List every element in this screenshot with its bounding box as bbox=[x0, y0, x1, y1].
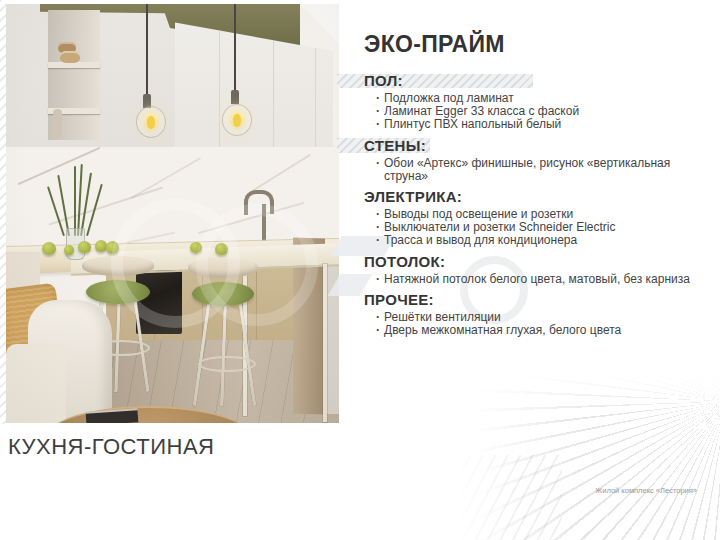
marble-vein bbox=[77, 232, 175, 255]
stool-cushion-green bbox=[192, 282, 254, 306]
bottle bbox=[53, 109, 62, 137]
plant-stem bbox=[47, 186, 65, 236]
pendant-socket bbox=[231, 90, 239, 104]
stool-footrest bbox=[198, 356, 256, 372]
plant-stem bbox=[80, 173, 92, 237]
open-shelf-niche bbox=[48, 10, 100, 140]
spec-item: Дверь межкомнатная глухая, белого цвета bbox=[376, 324, 716, 337]
countertop bbox=[6, 238, 339, 274]
section-heading-walls: СТЕНЫ: bbox=[364, 138, 716, 154]
page-title: ЭКО-ПРАЙМ bbox=[364, 31, 505, 58]
pear bbox=[42, 242, 56, 255]
island-panel-line bbox=[154, 262, 155, 350]
glass-vase bbox=[66, 228, 85, 260]
spec-item: Обои «Артекс» финишные, рисунок «вертика… bbox=[376, 157, 716, 183]
stool-leg bbox=[134, 300, 150, 392]
spec-item: Натяжной потолок белого цвета, матовый, … bbox=[376, 273, 716, 286]
bulb-filament bbox=[233, 114, 241, 127]
upper-cabinet-right bbox=[175, 12, 333, 162]
pendant-cord bbox=[234, 4, 236, 92]
pear bbox=[106, 241, 119, 254]
watermark-ring bbox=[196, 204, 318, 326]
shelf-board bbox=[48, 62, 100, 68]
pear bbox=[78, 241, 91, 253]
upper-cabinet-left bbox=[6, 4, 175, 152]
stool-leg bbox=[193, 304, 210, 405]
sofa-back bbox=[6, 252, 40, 423]
cabinet-seam bbox=[273, 12, 274, 160]
section-heading-ceiling: ПОТОЛОК: bbox=[364, 254, 716, 270]
olive-wall-band bbox=[40, 4, 300, 50]
magazine bbox=[86, 410, 139, 423]
island-panel-line bbox=[202, 262, 203, 350]
jar bbox=[60, 51, 80, 63]
marble-vein bbox=[251, 154, 311, 193]
faucet-spout bbox=[244, 206, 248, 215]
spec-item: Трасса и вывод для кондиционера bbox=[376, 234, 716, 247]
pendant-cord bbox=[146, 4, 148, 96]
bar-counter-top bbox=[71, 243, 339, 275]
round-coffee-table bbox=[46, 406, 251, 423]
section-list-other: Решётки вентиляции Дверь межкомнатная гл… bbox=[364, 311, 716, 337]
sofa-armrest bbox=[28, 300, 112, 423]
section-heading-electric: ЭЛЕКТРИКА: bbox=[364, 189, 716, 205]
marble-vein bbox=[17, 147, 100, 185]
complex-name-footer: Жилой комплекс «Лестория» bbox=[595, 486, 697, 495]
stool-seat bbox=[188, 258, 258, 278]
bar-frame-leg bbox=[323, 264, 327, 422]
built-in-oven bbox=[136, 262, 182, 334]
pear bbox=[64, 245, 74, 255]
bar-frame-leg bbox=[243, 268, 247, 416]
section-heading-floor: ПОЛ: bbox=[364, 73, 716, 89]
section-list-electric: Выводы под освещение и розетки Выключате… bbox=[364, 208, 716, 248]
mustard-pillow bbox=[6, 283, 65, 369]
stool-leg bbox=[239, 304, 256, 405]
section-list-ceiling: Натяжной потолок белого цвета, матовый, … bbox=[364, 273, 716, 286]
pendant-bulb bbox=[136, 106, 166, 138]
pear bbox=[215, 243, 228, 255]
watermark-ring bbox=[111, 199, 240, 328]
stool-seat bbox=[82, 256, 154, 276]
stool-cushion-green bbox=[86, 280, 150, 304]
kitchen-island bbox=[106, 262, 301, 350]
wood-floor bbox=[94, 340, 339, 423]
stool-footrest bbox=[92, 340, 150, 356]
faucet bbox=[244, 190, 274, 214]
stool-leg bbox=[220, 306, 226, 406]
pendant-socket bbox=[143, 94, 151, 108]
section-list-walls: Обои «Артекс» финишные, рисунок «вертика… bbox=[364, 157, 716, 183]
stool-leg bbox=[88, 300, 104, 392]
faucet-stem bbox=[262, 204, 266, 242]
pendant-bulb bbox=[222, 104, 252, 136]
plant-stem bbox=[86, 184, 103, 236]
island-panel-line bbox=[256, 262, 257, 350]
corner-stripe-patch bbox=[457, 455, 562, 540]
island-end-panel bbox=[293, 237, 325, 414]
pear bbox=[190, 242, 202, 253]
spec-item: Плинтус ПВХ напольный белый bbox=[376, 118, 716, 131]
marble-backsplash bbox=[6, 147, 339, 268]
section-heading-other: ПРОЧЕЕ: bbox=[364, 292, 716, 308]
cabinet-seam bbox=[315, 12, 316, 160]
room-caption: КУХНЯ-ГОСТИНАЯ bbox=[8, 434, 214, 460]
shelf-board bbox=[48, 108, 100, 114]
sofa-seat bbox=[6, 344, 66, 423]
plant-sprigs bbox=[56, 162, 100, 236]
ceiling-corner bbox=[289, 4, 339, 44]
marble-vein bbox=[49, 187, 164, 226]
stool-leg bbox=[114, 302, 120, 392]
bulb-filament bbox=[147, 116, 155, 129]
marble-vein bbox=[198, 202, 304, 234]
section-list-floor: Подложка под ламинат Ламинат Egger 33 кл… bbox=[364, 92, 716, 132]
plant-stem bbox=[77, 164, 83, 236]
plant-stem bbox=[74, 166, 76, 236]
kitchen-photo bbox=[6, 4, 339, 423]
cabinet-seam bbox=[219, 12, 220, 160]
pear bbox=[95, 240, 107, 252]
spec-sections: ПОЛ: Подложка под ламинат Ламинат Egger … bbox=[364, 73, 716, 343]
plant-stem bbox=[57, 175, 70, 236]
marble-vein bbox=[131, 157, 201, 199]
jar bbox=[58, 42, 76, 53]
spec-slide: ЭКО-ПРАЙМ ПОЛ: Подложка под ламинат Лами… bbox=[0, 0, 720, 540]
